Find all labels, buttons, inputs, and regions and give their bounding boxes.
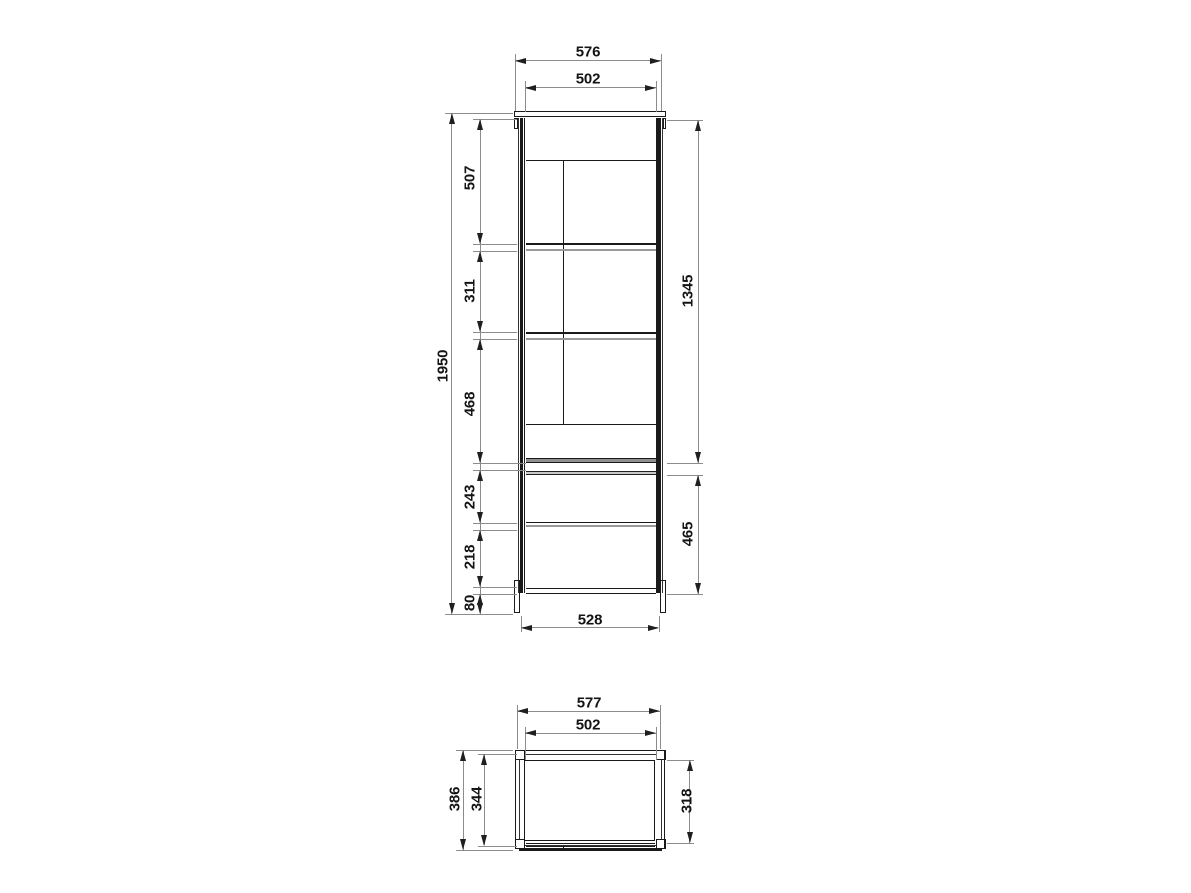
bottom-panel-top-line	[526, 588, 656, 590]
dim-overall-height-label: 1950	[435, 350, 452, 383]
divider-bottom-line	[526, 424, 656, 425]
dim-inner-width-label: 502	[576, 70, 600, 87]
right-foot	[660, 580, 666, 613]
plan-front-edge-band	[519, 848, 662, 851]
mid-rail-light-band	[526, 471, 656, 476]
dim-top-section-label: 507	[462, 166, 479, 190]
plan-inner-outline	[524, 760, 655, 841]
left-leg-post	[520, 118, 523, 594]
dim-plan-inner-width-label: 502	[576, 717, 600, 734]
shelf-2-top-line	[526, 332, 656, 335]
bottom-panel-bottom-line	[526, 593, 656, 595]
dim-base-height-label: 465	[680, 522, 697, 546]
dim-overall-width-label: 576	[576, 44, 600, 61]
interior-top-rail-line	[526, 160, 656, 161]
shelf-1-bottom-line	[526, 249, 656, 251]
dim-base-width-label: 528	[578, 612, 602, 629]
dim-plan-mid-depth-label: 344	[468, 787, 485, 811]
dim-plan-inner-depth-label: 318	[679, 788, 696, 812]
shelf-3-top-line	[526, 522, 656, 524]
plan-back-rail-line-2	[526, 846, 655, 847]
right-leg-post	[657, 118, 660, 594]
shelf-3-bottom-line	[526, 525, 656, 527]
dim-plan-overall-depth-label: 386	[446, 787, 463, 811]
right-top-cap	[663, 118, 667, 129]
tabletop	[514, 111, 666, 117]
dim-lower-section-label: 468	[462, 392, 479, 416]
dim-plinth-label: 80	[462, 594, 479, 610]
shelf-2-bottom-line	[526, 338, 656, 340]
plan-back-rail-line-1	[526, 843, 655, 844]
left-foot	[514, 580, 520, 613]
dim-drawer-section-label: 243	[462, 485, 479, 509]
dim-middle-section-label: 311	[462, 279, 479, 303]
mid-rail-dark-band	[526, 458, 656, 464]
right-leg-outer-line	[662, 118, 663, 594]
center-divider	[563, 160, 564, 425]
shelf-1-top-line	[526, 243, 656, 246]
dim-plan-overall-width-label: 577	[577, 695, 601, 712]
technical-drawing: 576 502 1950	[0, 0, 1191, 893]
dim-base-section-label: 218	[462, 545, 479, 569]
dim-door-height-label: 1345	[679, 275, 696, 308]
